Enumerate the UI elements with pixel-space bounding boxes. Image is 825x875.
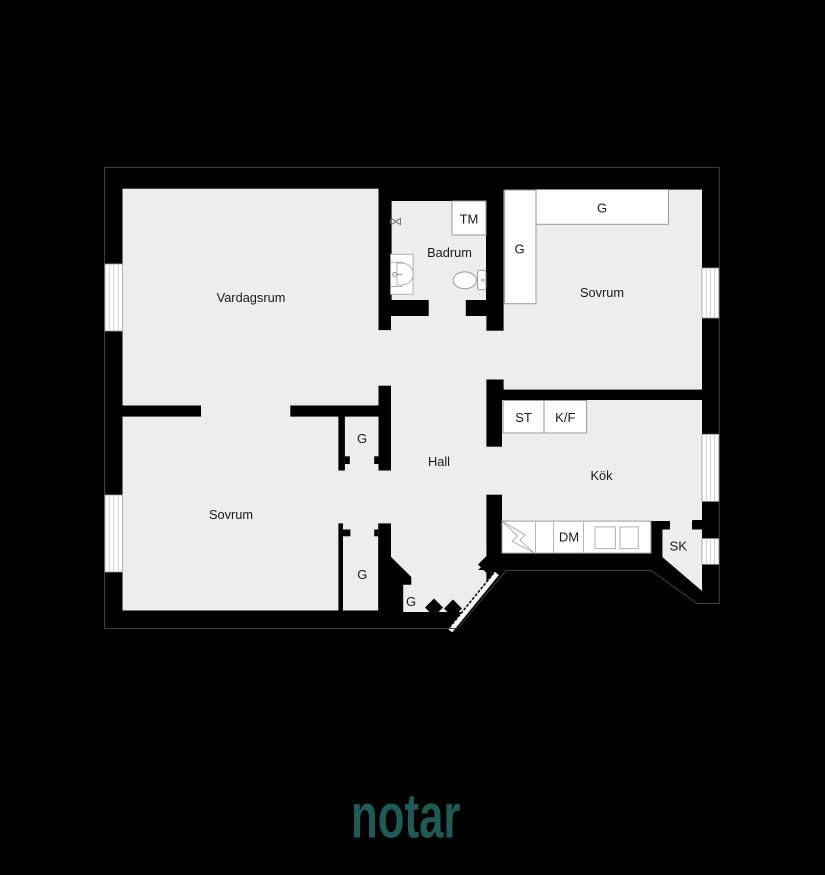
svg-text:ST: ST bbox=[515, 410, 532, 425]
svg-text:TM: TM bbox=[460, 212, 479, 227]
svg-text:K/F: K/F bbox=[555, 410, 575, 425]
svg-text:Vardagsrum: Vardagsrum bbox=[217, 290, 286, 305]
svg-text:G: G bbox=[357, 567, 367, 582]
svg-text:G: G bbox=[357, 431, 367, 446]
svg-text:Badrum: Badrum bbox=[427, 245, 472, 260]
svg-text:SK: SK bbox=[670, 539, 688, 554]
svg-text:Sovrum: Sovrum bbox=[209, 507, 253, 522]
svg-text:G: G bbox=[597, 201, 607, 216]
svg-text:G: G bbox=[406, 594, 416, 609]
svg-text:Hall: Hall bbox=[428, 454, 450, 469]
svg-text:G: G bbox=[514, 242, 524, 257]
svg-text:DM: DM bbox=[559, 530, 579, 545]
svg-text:Kök: Kök bbox=[590, 468, 613, 483]
svg-text:Sovrum: Sovrum bbox=[580, 285, 624, 300]
svg-text:notar: notar bbox=[351, 782, 460, 852]
